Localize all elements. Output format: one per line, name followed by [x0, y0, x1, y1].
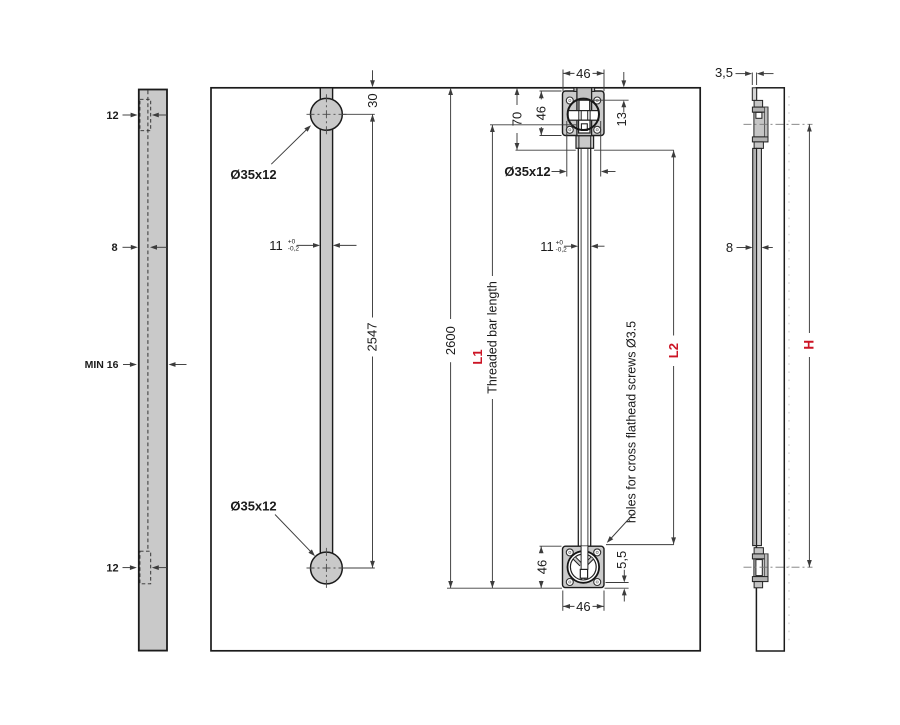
svg-text:8: 8	[726, 240, 733, 255]
svg-text:12: 12	[106, 110, 118, 122]
svg-text:MIN 16: MIN 16	[85, 359, 119, 371]
svg-text:Ø35x12: Ø35x12	[504, 164, 550, 179]
svg-text:-0,2: -0,2	[556, 246, 568, 253]
svg-text:2600: 2600	[443, 326, 458, 355]
svg-text:L1: L1	[470, 349, 485, 364]
svg-text:Ø35x12: Ø35x12	[230, 498, 276, 513]
svg-text:5,5: 5,5	[614, 551, 629, 569]
svg-text:12: 12	[106, 562, 118, 574]
svg-text:Ø35x12: Ø35x12	[230, 167, 276, 182]
svg-text:Threaded bar length: Threaded bar length	[486, 281, 500, 394]
svg-text:13: 13	[614, 112, 629, 126]
svg-text:L2: L2	[666, 343, 681, 358]
svg-text:8: 8	[111, 242, 117, 254]
svg-text:46: 46	[534, 560, 549, 574]
svg-text:11: 11	[269, 238, 283, 253]
svg-text:70: 70	[509, 112, 524, 126]
svg-text:11: 11	[540, 239, 554, 254]
svg-text:46: 46	[576, 66, 590, 81]
svg-text:3,5: 3,5	[715, 65, 733, 80]
svg-text:-0,2: -0,2	[288, 245, 300, 252]
svg-text:holes for cross flathead screw: holes for cross flathead screws Ø3.5	[625, 321, 639, 523]
svg-text:H: H	[802, 340, 817, 350]
svg-text:46: 46	[576, 599, 590, 614]
svg-text:2547: 2547	[365, 323, 380, 352]
svg-text:46: 46	[534, 106, 549, 120]
svg-text:30: 30	[365, 93, 380, 107]
